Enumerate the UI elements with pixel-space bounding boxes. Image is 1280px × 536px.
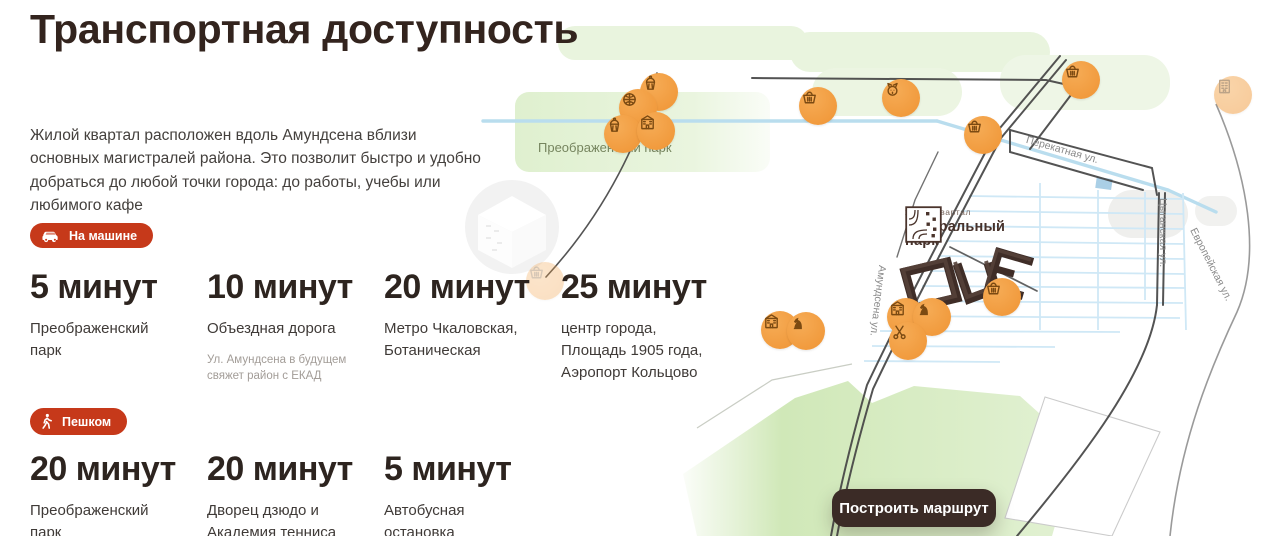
basket-icon <box>983 278 1004 299</box>
pet-icon <box>882 79 903 100</box>
building-icon <box>1214 76 1235 97</box>
time-card: 20 минут Метро Чкаловская, Ботаническая <box>384 268 561 384</box>
time-card: 10 минут Объездная дорога Ул. Амундсена … <box>207 268 384 384</box>
transport-accessibility-section: Преображенский парк Перекатная ул. Цыган… <box>0 0 1280 536</box>
map-marker-basket[interactable] <box>799 87 837 125</box>
time-value: 5 минут <box>30 268 207 307</box>
by-car-badge-label: На машине <box>69 229 137 243</box>
time-place: Преображенский парк <box>30 500 182 536</box>
time-card: 20 минут Дворец дзюдо и Академия тенниса <box>207 450 384 536</box>
map-marker-basket[interactable] <box>964 116 1002 154</box>
walk-times-row: 20 минут Преображенский парк 20 минут Дв… <box>30 450 561 536</box>
basket-icon <box>1062 61 1083 82</box>
build-route-button[interactable]: Построить маршрут <box>832 489 996 527</box>
street-label-tsyganskaya: Цыганская ул. <box>1157 198 1169 267</box>
school-icon <box>887 298 908 319</box>
time-value: 25 минут <box>561 268 738 307</box>
on-foot-badge: Пешком <box>30 408 127 435</box>
quarter-logo: жилой квартал центральный парк <box>905 206 1005 249</box>
chess-knight-icon <box>787 312 808 333</box>
time-card: 5 минут Автобусная остановка <box>384 450 561 536</box>
time-place: центр города, Площадь 1905 года, Аэропор… <box>561 318 723 383</box>
time-card: 5 минут Преображенский парк <box>30 268 207 384</box>
by-car-badge: На машине <box>30 223 153 248</box>
map-marker-chess-knight[interactable] <box>787 312 825 350</box>
time-place: Автобусная остановка <box>384 500 536 536</box>
quarter-logo-icon <box>905 206 942 243</box>
map-marker-basket[interactable] <box>983 278 1021 316</box>
map-marker-basket[interactable] <box>1062 61 1100 99</box>
map-marker-pet[interactable] <box>882 79 920 117</box>
pedestrian-icon <box>40 413 54 430</box>
time-value: 20 минут <box>30 450 207 489</box>
school-icon <box>637 112 658 133</box>
page-description: Жилой квартал расположен вдоль Амундсена… <box>30 124 482 217</box>
time-place: Преображенский парк <box>30 318 182 362</box>
time-value: 20 минут <box>207 450 384 489</box>
cupcake-icon <box>604 115 625 136</box>
road-evropeyskaya <box>1170 104 1250 536</box>
map-marker-school[interactable] <box>637 112 675 150</box>
basket-icon <box>799 87 820 108</box>
time-value: 10 минут <box>207 268 384 307</box>
sports-ball-icon <box>619 89 640 110</box>
map-marker-scissors[interactable] <box>889 322 927 360</box>
page-title: Транспортная доступность <box>30 6 578 54</box>
time-place: Метро Чкаловская, Ботаническая <box>384 318 536 362</box>
car-icon <box>40 228 61 243</box>
time-note: Ул. Амундсена в будущем свяжет район с Е… <box>207 352 349 384</box>
time-place: Объездная дорога <box>207 318 359 340</box>
time-card: 25 минут центр города, Площадь 1905 года… <box>561 268 738 384</box>
school-icon <box>761 311 782 332</box>
time-value: 5 минут <box>384 450 561 489</box>
time-value: 20 минут <box>384 268 561 307</box>
chess-knight-icon <box>913 298 934 319</box>
basket-icon <box>964 116 985 137</box>
on-foot-badge-label: Пешком <box>62 415 111 429</box>
map-marker-building[interactable] <box>1214 76 1252 114</box>
scissors-icon <box>889 322 910 343</box>
green-band <box>558 26 808 60</box>
time-card: 20 минут Преображенский парк <box>30 450 207 536</box>
car-times-row: 5 минут Преображенский парк 10 минут Объ… <box>30 268 738 384</box>
time-place: Дворец дзюдо и Академия тенниса <box>207 500 359 536</box>
